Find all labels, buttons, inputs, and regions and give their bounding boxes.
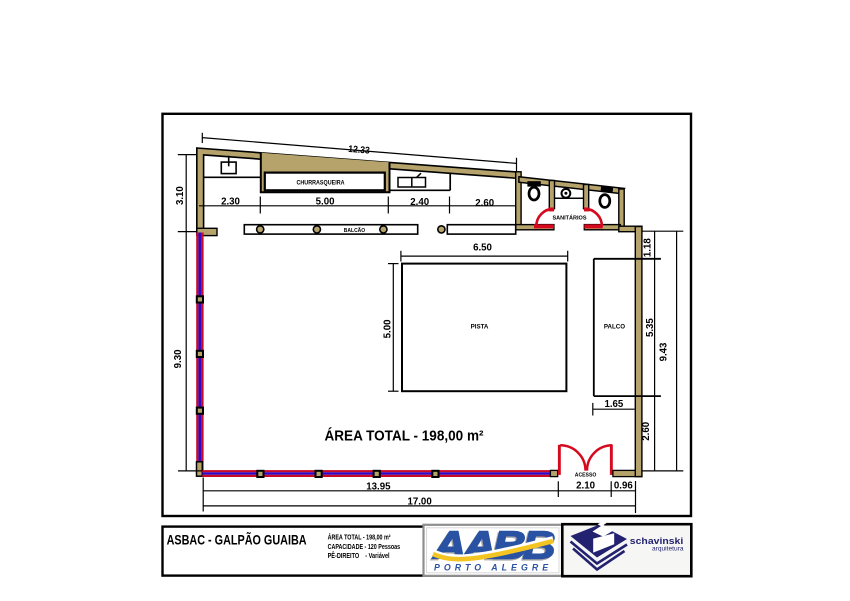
- svg-text:arquitetura: arquitetura: [652, 546, 684, 553]
- svg-text:9.30: 9.30: [173, 349, 184, 368]
- svg-text:9.43: 9.43: [658, 342, 669, 361]
- svg-text:1.18: 1.18: [643, 238, 654, 257]
- svg-text:PORTO ALEGRE: PORTO ALEGRE: [434, 562, 550, 572]
- svg-text:CAPACIDADE - 120 Pessoas: CAPACIDADE - 120 Pessoas: [328, 542, 401, 551]
- svg-text:SANITÁRIOS: SANITÁRIOS: [553, 215, 587, 222]
- svg-text:ÁREA TOTAL - 198,00 m²: ÁREA TOTAL - 198,00 m²: [325, 427, 484, 444]
- svg-text:PALCO: PALCO: [604, 323, 625, 330]
- svg-text:5.00: 5.00: [316, 196, 335, 207]
- svg-text:1.65: 1.65: [604, 399, 623, 410]
- svg-text:12.33: 12.33: [348, 144, 371, 157]
- svg-text:ACESSO: ACESSO: [575, 472, 597, 478]
- svg-text:ASBAC - GALPÃO GUAIBA: ASBAC - GALPÃO GUAIBA: [167, 531, 307, 548]
- svg-text:2.40: 2.40: [410, 197, 429, 208]
- svg-text:13.95: 13.95: [366, 481, 391, 492]
- svg-text:17.00: 17.00: [407, 497, 431, 508]
- svg-text:0.96: 0.96: [614, 480, 633, 491]
- svg-text:2.10: 2.10: [576, 481, 595, 492]
- svg-text:ÁREA TOTAL - 198,00 m²: ÁREA TOTAL - 198,00 m²: [328, 533, 391, 542]
- svg-text:2.30: 2.30: [221, 196, 240, 207]
- svg-text:5.35: 5.35: [645, 318, 656, 337]
- svg-text:CHURRASQUEIRA: CHURRASQUEIRA: [297, 179, 345, 186]
- svg-text:6.50: 6.50: [473, 243, 492, 254]
- svg-text:3.10: 3.10: [175, 186, 186, 205]
- svg-text:2.60: 2.60: [475, 198, 494, 209]
- svg-text:PÊ-DIREITO - Variável: PÊ-DIREITO - Variável: [328, 551, 390, 560]
- svg-text:PISTA: PISTA: [471, 323, 489, 330]
- svg-text:5.00: 5.00: [382, 319, 393, 338]
- svg-text:2.60: 2.60: [641, 422, 652, 441]
- svg-text:BALCÃO: BALCÃO: [344, 227, 365, 234]
